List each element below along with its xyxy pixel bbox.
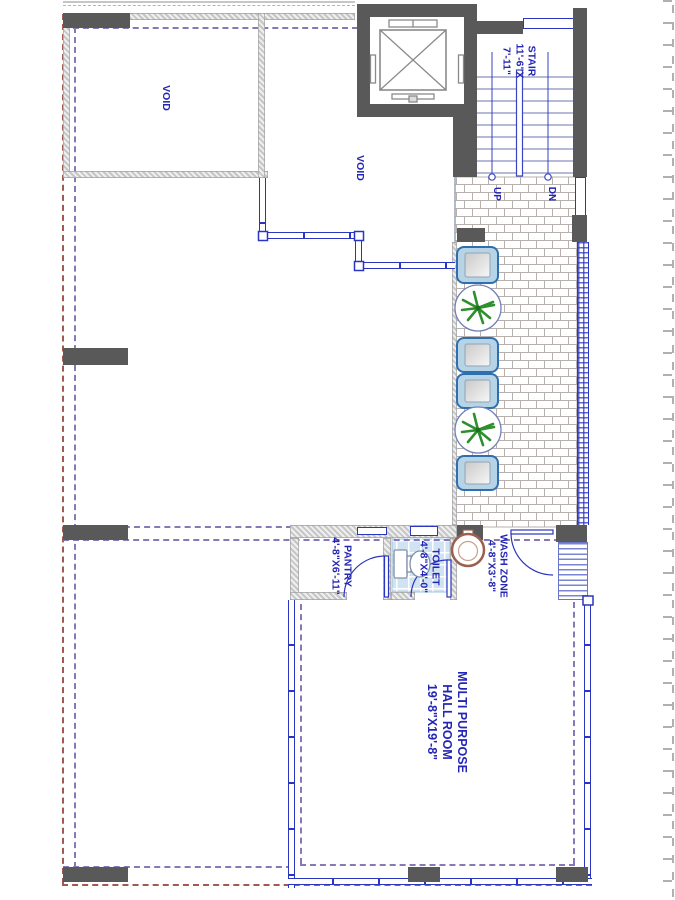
- washbasin-icon: [457, 374, 498, 408]
- door-swings: [344, 530, 553, 597]
- up-text: UP: [490, 187, 502, 201]
- stair-dim1: 11'-6"X: [513, 44, 525, 79]
- pantry-name: PANTRY: [341, 537, 353, 595]
- stair-center-rail: [517, 70, 523, 176]
- toilet-name: TOILET: [429, 541, 441, 593]
- washbasin-icon: [457, 456, 498, 490]
- hall-dim: 19'-8"X19'-8": [425, 671, 440, 773]
- plan-linework: [0, 0, 675, 900]
- pantry-dim: 4'-8"X6'-11": [329, 537, 341, 595]
- stair-dn-marker: [545, 174, 551, 180]
- toilet-label: TOILET 4'-8"X4'-0": [417, 541, 442, 593]
- stair-up-marker: [489, 174, 495, 180]
- stair-dn-label: DN: [545, 187, 557, 201]
- floor-plan-canvas: VOID VOID STAIR 11'-6"X 7'-11" UP DN PAN…: [0, 0, 675, 900]
- pantry-label: PANTRY 4'-8"X6'-11": [329, 537, 354, 595]
- washzone-label: WASH ZONE 4'-8"X3'-8": [485, 534, 510, 598]
- void1-label: VOID: [160, 85, 172, 111]
- void2-label: VOID: [354, 155, 366, 181]
- elevator-icon: [371, 20, 464, 102]
- toilet-dim: 4'-8"X4'-0": [417, 541, 429, 593]
- washbasin-icon: [457, 247, 498, 283]
- void1-text: VOID: [160, 85, 172, 111]
- hall-line1: MULTI PURPOSE: [454, 671, 469, 773]
- planter-icon: [455, 407, 501, 453]
- hall-entry-door: [511, 530, 553, 575]
- washzone-name: WASH ZONE: [497, 534, 509, 598]
- stair-name: STAIR: [525, 44, 537, 79]
- stair-dim2: 7'-11": [500, 44, 512, 79]
- stair-label: STAIR 11'-6"X 7'-11": [500, 44, 537, 79]
- round-washbasin-icon: [452, 530, 484, 566]
- dn-text: DN: [545, 187, 557, 201]
- washbasin-icon: [457, 338, 498, 372]
- void2-text: VOID: [354, 155, 366, 181]
- washzone-dim: 4'-8"X3'-8": [485, 534, 497, 598]
- stair-up-label: UP: [490, 187, 502, 201]
- staircase: [455, 52, 573, 242]
- planter-icon: [455, 285, 501, 331]
- hall-line2: HALL ROOM: [440, 671, 455, 773]
- hall-label: MULTI PURPOSE HALL ROOM 19'-8"X19'-8": [425, 671, 469, 773]
